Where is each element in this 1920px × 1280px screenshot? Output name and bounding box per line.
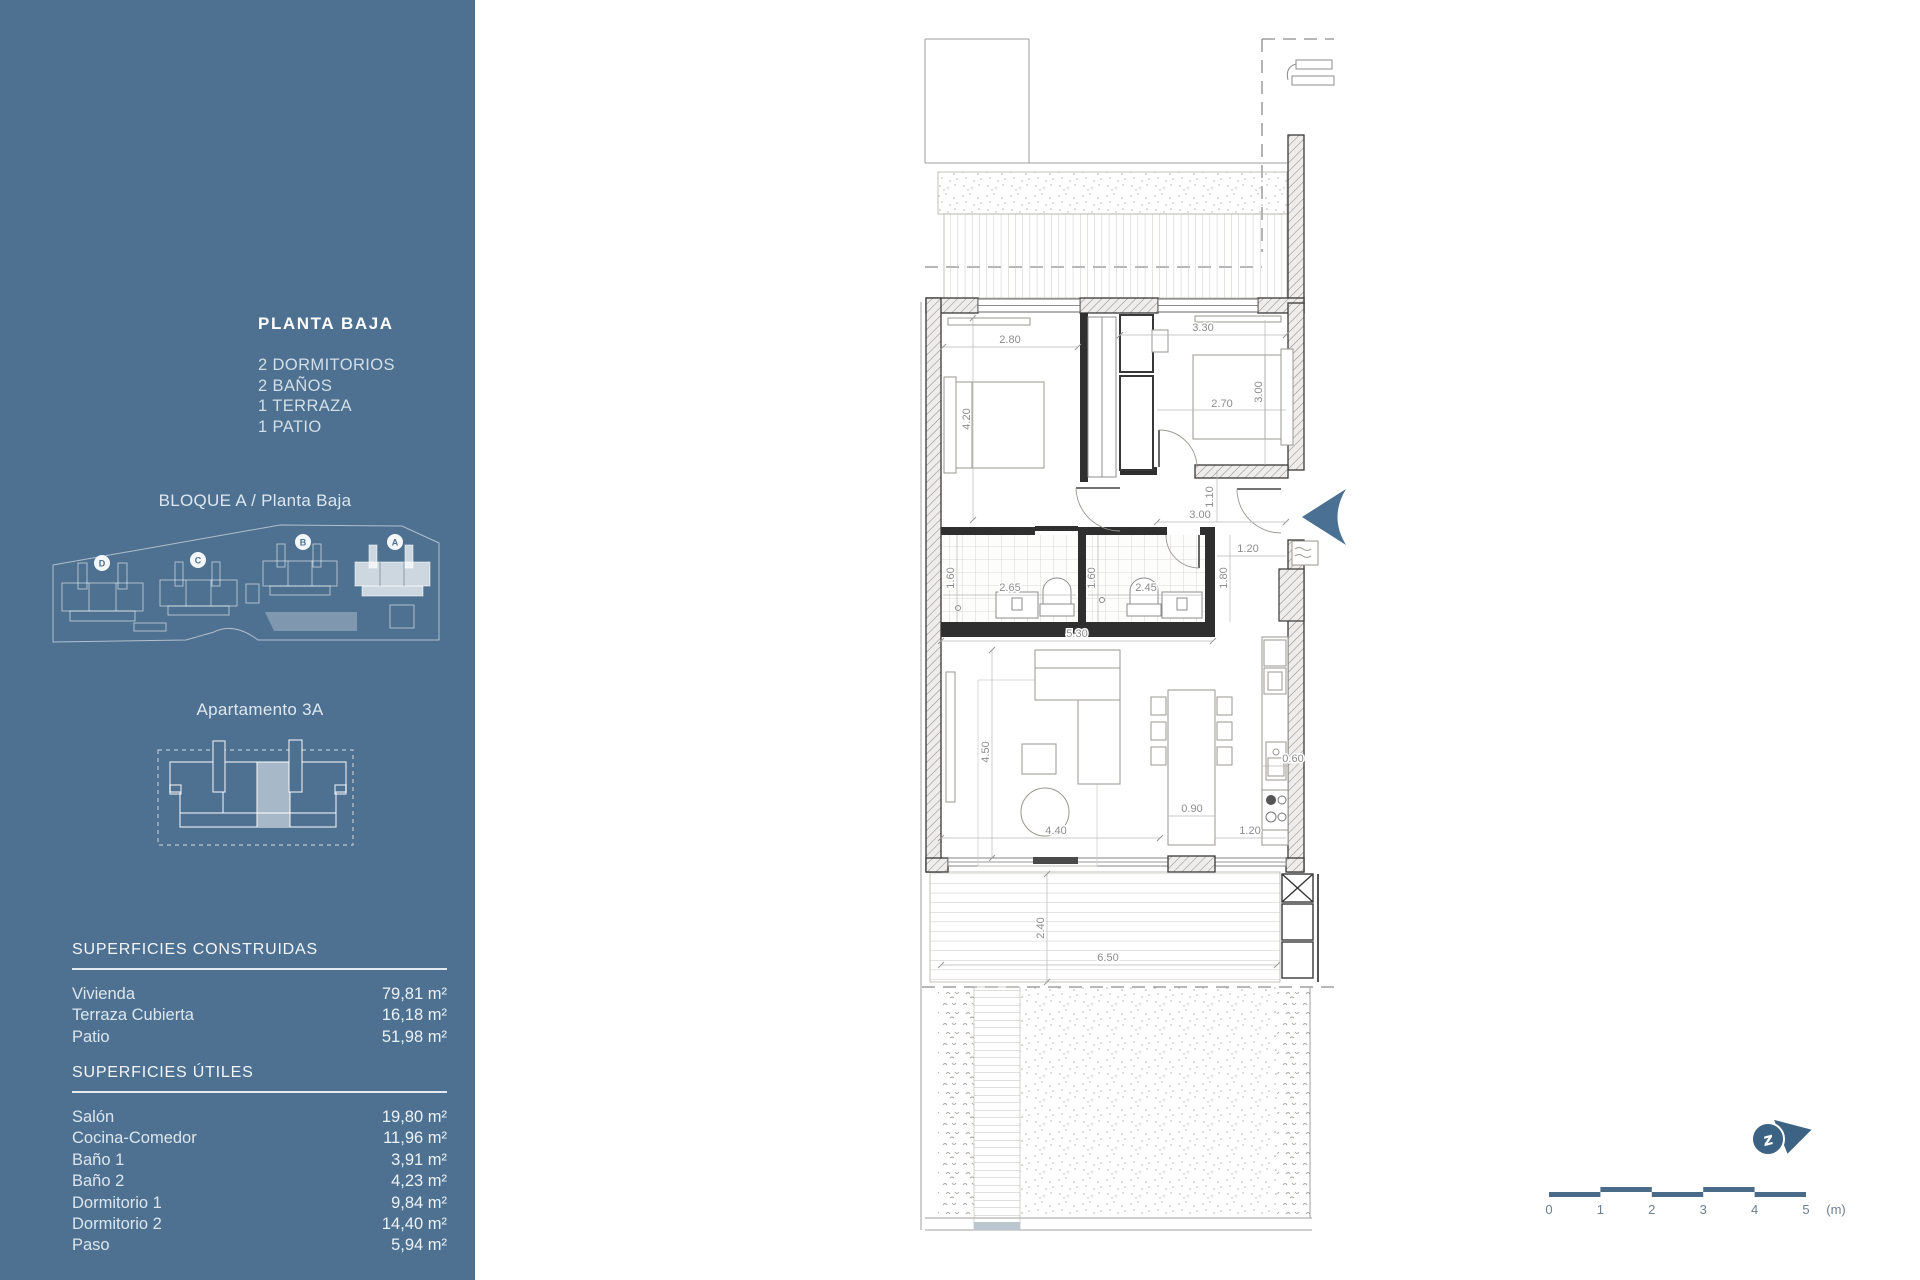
slider-leaf bbox=[1033, 857, 1078, 864]
building-b bbox=[263, 544, 337, 595]
area-row: Cocina-Comedor 11,96 m² bbox=[72, 1128, 447, 1149]
superficies-utiles: SUPERFICIES ÚTILES Salón 19,80 m² Cocina… bbox=[72, 1064, 447, 1257]
area-value: 11,96 m² bbox=[383, 1128, 447, 1149]
dimension-label: 4.40 bbox=[1045, 825, 1066, 837]
dimension-label: 2.80 bbox=[999, 334, 1020, 346]
area-label: Dormitorio 1 bbox=[72, 1193, 162, 1214]
chair bbox=[1217, 722, 1232, 740]
scale-bar bbox=[1549, 1187, 1806, 1197]
terrace-deck-top bbox=[944, 214, 1287, 298]
wardrobes bbox=[1088, 315, 1153, 477]
dorm2-bed bbox=[1193, 355, 1281, 439]
area-row: Baño 1 3,91 m² bbox=[72, 1150, 447, 1171]
dorm2-headboard bbox=[1281, 349, 1293, 445]
tv-console bbox=[946, 672, 955, 802]
floor-plan: 2.80 3.30 4.20 2.70 3.00 1.10 3.00 1.20 … bbox=[900, 20, 1350, 1235]
scale-tick-label: 5 bbox=[1802, 1202, 1809, 1217]
area-row: Patio 51,98 m² bbox=[72, 1027, 447, 1048]
dimension-label: 3.30 bbox=[1192, 322, 1213, 334]
dimension-label: 3.00 bbox=[1253, 381, 1265, 402]
north-compass-icon: z bbox=[1752, 1118, 1814, 1156]
bath1-sliding-door bbox=[1035, 526, 1078, 531]
entry-arrow-icon bbox=[1302, 489, 1346, 545]
area-label: Patio bbox=[72, 1027, 110, 1048]
tower bbox=[289, 740, 302, 792]
area-label: Vivienda bbox=[72, 984, 135, 1005]
gravel-band-top bbox=[938, 172, 1287, 214]
scale-bar-labels: 0 1 2 3 4 5 (m) bbox=[1545, 1202, 1845, 1217]
area-row: Paso 5,94 m² bbox=[72, 1235, 447, 1256]
section-title: SUPERFICIES ÚTILES bbox=[72, 1064, 447, 1093]
scale-tick-label: 4 bbox=[1751, 1202, 1758, 1217]
dimension-label: 2.40 bbox=[1035, 917, 1047, 938]
chair bbox=[1151, 697, 1166, 715]
plot-outline bbox=[158, 750, 353, 845]
patio-gravel bbox=[1020, 987, 1277, 1215]
utility-closet bbox=[1279, 569, 1304, 621]
area-label: Baño 1 bbox=[72, 1150, 124, 1171]
section-title: SUPERFICIES CONSTRUIDAS bbox=[72, 941, 447, 970]
sofa-seat bbox=[1035, 668, 1120, 700]
area-value: 14,40 m² bbox=[382, 1214, 447, 1235]
dimension-label: 1.20 bbox=[1239, 825, 1260, 837]
dorm1-headboard bbox=[944, 377, 956, 473]
sofa-back bbox=[1035, 650, 1120, 668]
bottom-pier bbox=[1168, 856, 1215, 872]
dimension-label: 3.00 bbox=[1189, 509, 1210, 521]
patio bbox=[938, 987, 1310, 1230]
scale-tick-label: 2 bbox=[1648, 1202, 1655, 1217]
building-a-highlighted bbox=[355, 545, 430, 596]
pool bbox=[265, 612, 357, 631]
feature-item: 1 PATIO bbox=[258, 417, 395, 438]
area-value: 9,84 m² bbox=[391, 1193, 447, 1214]
area-row: Salón 19,80 m² bbox=[72, 1107, 447, 1128]
area-label: Salón bbox=[72, 1107, 114, 1128]
dimension-label: 4.50 bbox=[980, 741, 992, 762]
plan-legend: z 0 1 2 3 4 5 (m) bbox=[1540, 1090, 1920, 1240]
dimension-label: 2.65 bbox=[999, 582, 1020, 594]
area-label: Terraza Cubierta bbox=[72, 1005, 194, 1026]
oven bbox=[1264, 640, 1286, 666]
block-marker-label: C bbox=[195, 556, 202, 566]
covered-terrace-deck bbox=[930, 872, 1280, 982]
site-detail bbox=[134, 623, 166, 631]
area-label: Dormitorio 2 bbox=[72, 1214, 162, 1235]
plan-title: PLANTA BAJA bbox=[258, 314, 394, 334]
block-marker-label: D bbox=[99, 559, 106, 569]
feature-item: 2 DORMITORIOS bbox=[258, 355, 395, 376]
dimension-label: 4.20 bbox=[961, 408, 973, 429]
superficies-construidas: SUPERFICIES CONSTRUIDAS Vivienda 79,81 m… bbox=[72, 941, 447, 1048]
dorm1-furniture bbox=[944, 318, 1044, 473]
cooktop bbox=[1262, 790, 1288, 830]
area-label: Cocina-Comedor bbox=[72, 1128, 197, 1149]
unit-highlight bbox=[257, 762, 290, 826]
area-value: 5,94 m² bbox=[391, 1235, 447, 1256]
chair bbox=[1217, 747, 1232, 765]
area-row: Baño 2 4,23 m² bbox=[72, 1171, 447, 1192]
neighbour-stair bbox=[1287, 60, 1334, 85]
living-room bbox=[946, 650, 1120, 866]
patio-vegetation-right bbox=[1277, 987, 1310, 1215]
dimension-label: 1.60 bbox=[1086, 567, 1098, 588]
dimension-label: 2.45 bbox=[1135, 582, 1156, 594]
dimension-label: 1.80 bbox=[1218, 567, 1230, 588]
site-detail bbox=[390, 605, 414, 628]
block-marker-label: B bbox=[300, 538, 307, 548]
area-value: 16,18 m² bbox=[382, 1005, 447, 1026]
walkway-end bbox=[974, 1222, 1020, 1230]
dimension-label: 0.90 bbox=[1181, 803, 1202, 815]
apartment-label: Apartamento 3A bbox=[50, 700, 470, 720]
feature-item: 2 BAÑOS bbox=[258, 376, 395, 397]
scale-tick-label: 0 bbox=[1545, 1202, 1552, 1217]
dining-table bbox=[1168, 690, 1215, 845]
area-value: 51,98 m² bbox=[382, 1027, 447, 1048]
area-row: Dormitorio 2 14,40 m² bbox=[72, 1214, 447, 1235]
apartment-diagram bbox=[150, 728, 360, 854]
chair bbox=[1217, 697, 1232, 715]
feature-list: 2 DORMITORIOS 2 BAÑOS 1 TERRAZA 1 PATIO bbox=[258, 355, 395, 437]
building-c bbox=[160, 562, 237, 615]
area-value: 4,23 m² bbox=[391, 1171, 447, 1192]
dimension-label: 1.20 bbox=[1237, 543, 1258, 555]
sidebar: PLANTA BAJA 2 DORMITORIOS 2 BAÑOS 1 TERR… bbox=[0, 0, 475, 1280]
dimension-label: 6.50 bbox=[1097, 952, 1118, 964]
laundry-sink bbox=[1292, 541, 1318, 565]
nightstand bbox=[1152, 330, 1168, 352]
chair bbox=[1151, 747, 1166, 765]
area-label: Paso bbox=[72, 1235, 110, 1256]
tower bbox=[213, 741, 225, 792]
area-row: Vivienda 79,81 m² bbox=[72, 984, 447, 1005]
area-row: Dormitorio 1 9,84 m² bbox=[72, 1193, 447, 1214]
planter bbox=[1282, 942, 1313, 978]
scale-tick-label: 1 bbox=[1597, 1202, 1604, 1217]
sofa-chaise bbox=[1078, 700, 1120, 784]
site-detail bbox=[246, 584, 259, 603]
toilet bbox=[1043, 578, 1071, 604]
dimension-label: 5.30 bbox=[1066, 628, 1087, 640]
chair bbox=[1151, 722, 1166, 740]
terrace-units bbox=[1282, 874, 1318, 982]
dimension-label: 0.60 bbox=[1282, 753, 1303, 765]
building-d bbox=[62, 563, 143, 621]
dimension-label: 2.70 bbox=[1211, 398, 1232, 410]
feature-item: 1 TERRAZA bbox=[258, 396, 395, 417]
patio-vegetation-left bbox=[938, 987, 974, 1215]
siteplan-minimap: D C B A bbox=[48, 520, 448, 660]
ottoman bbox=[1022, 744, 1056, 774]
scale-unit-label: (m) bbox=[1826, 1202, 1846, 1217]
patio-walkway bbox=[974, 987, 1020, 1230]
area-value: 19,80 m² bbox=[382, 1107, 447, 1128]
block-label: BLOQUE A / Planta Baja bbox=[35, 491, 475, 511]
block-marker-label: A bbox=[392, 538, 399, 548]
area-row: Terraza Cubierta 16,18 m² bbox=[72, 1005, 447, 1026]
area-value: 79,81 m² bbox=[382, 984, 447, 1005]
dimension-label: 1.60 bbox=[945, 567, 957, 588]
planter bbox=[1282, 904, 1313, 940]
dimension-label: 1.10 bbox=[1204, 486, 1216, 507]
scale-tick-label: 3 bbox=[1700, 1202, 1707, 1217]
area-label: Baño 2 bbox=[72, 1171, 124, 1192]
area-value: 3,91 m² bbox=[391, 1150, 447, 1171]
dining-set bbox=[1151, 690, 1232, 845]
